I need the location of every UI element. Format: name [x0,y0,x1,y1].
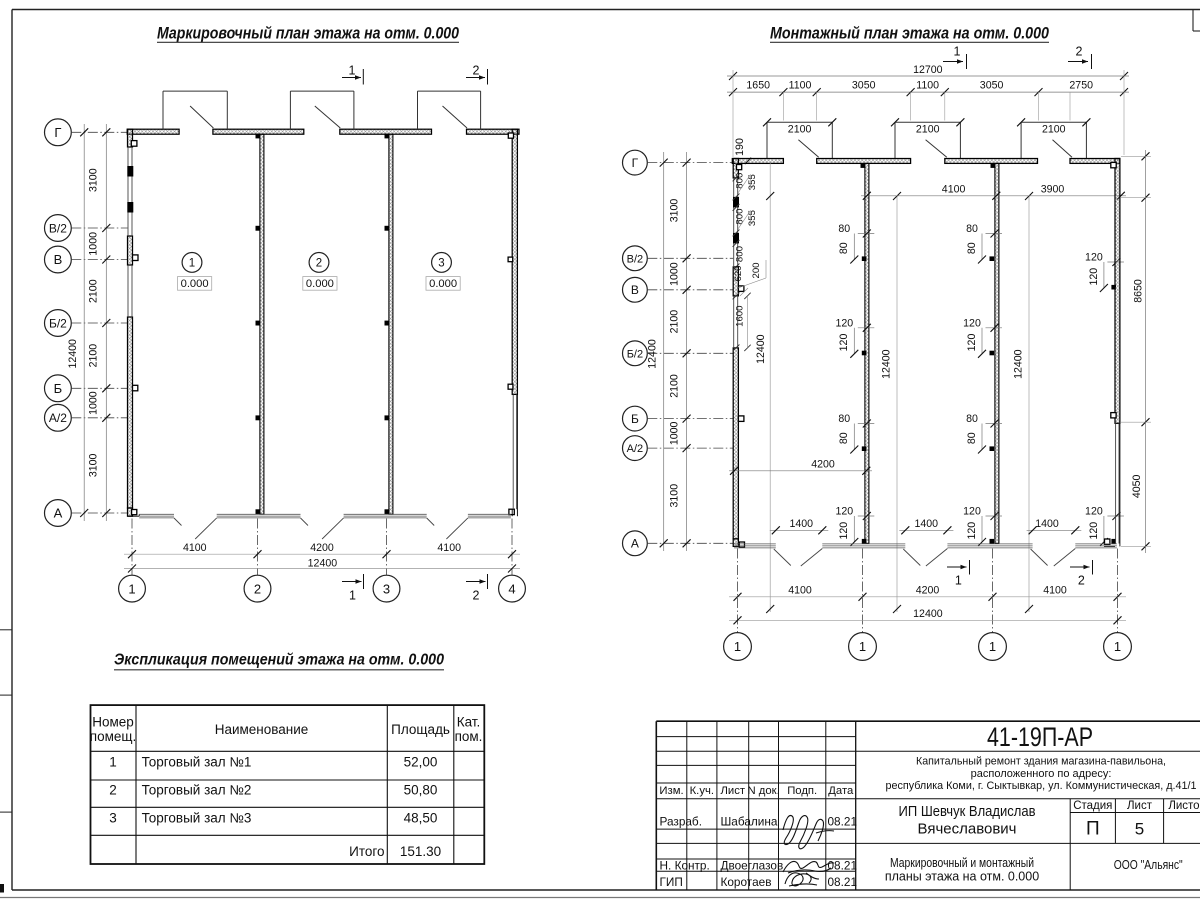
svg-text:3100: 3100 [669,484,681,508]
svg-text:Капитальный ремонт здания мага: Капитальный ремонт здания магазина-павил… [916,756,1166,768]
svg-text:Двоеглазов: Двоеглазов [721,858,784,872]
svg-text:Дата: Дата [828,785,854,797]
svg-text:200: 200 [751,262,762,278]
svg-text:1: 1 [734,639,741,654]
svg-text:2100: 2100 [916,124,940,136]
svg-text:ИП Шевчук Владислав: ИП Шевчук Владислав [899,803,1036,820]
svg-text:Коротаев: Коротаев [721,875,772,889]
svg-text:800: 800 [734,246,745,262]
svg-text:1: 1 [109,754,117,769]
svg-text:Экспликация помещений этажа на: Экспликация помещений этажа на отм. 0.00… [114,651,444,668]
svg-text:120: 120 [1085,252,1103,264]
svg-text:1400: 1400 [790,518,814,530]
svg-text:800: 800 [734,209,745,225]
svg-text:08.21: 08.21 [828,875,858,889]
svg-text:Вячеславович: Вячеславович [917,820,1016,837]
svg-text:Б/2: Б/2 [49,316,67,330]
svg-text:2100: 2100 [669,374,681,398]
svg-text:2: 2 [109,782,117,797]
svg-text:Торговый зал №1: Торговый зал №1 [142,754,252,769]
svg-text:12400: 12400 [755,334,767,364]
svg-text:4100: 4100 [183,542,207,554]
svg-text:4200: 4200 [916,584,940,596]
svg-text:1000: 1000 [669,262,681,286]
svg-text:1000: 1000 [88,391,100,415]
svg-text:А: А [631,537,639,551]
svg-text:0.000: 0.000 [306,278,334,290]
svg-text:1: 1 [955,574,962,588]
svg-text:2100: 2100 [669,310,681,334]
svg-text:5: 5 [1135,820,1144,839]
svg-text:41-19П-АР: 41-19П-АР [987,722,1093,752]
svg-text:4200: 4200 [811,458,835,470]
svg-text:2: 2 [473,589,480,603]
svg-text:3100: 3100 [669,199,681,223]
svg-text:Б: Б [631,412,639,426]
svg-text:12400: 12400 [880,349,892,379]
svg-text:Лист: Лист [1127,800,1153,812]
svg-text:2100: 2100 [88,344,100,368]
svg-text:Торговый зал №3: Торговый зал №3 [142,810,252,825]
svg-text:12700: 12700 [913,64,943,76]
svg-text:республика Коми, г. Сыктывкар,: республика Коми, г. Сыктывкар, ул. Комму… [886,780,1197,792]
svg-text:1: 1 [859,639,866,654]
svg-text:2: 2 [1078,574,1085,588]
svg-text:151.30: 151.30 [400,844,441,859]
svg-text:120: 120 [838,522,850,540]
svg-text:Монтажный план этажа на отм. 0: Монтажный план этажа на отм. 0.000 [770,25,1049,43]
svg-text:Торговый зал №2: Торговый зал №2 [142,782,252,797]
svg-text:расположенного по адресу:: расположенного по адресу: [971,768,1112,780]
svg-text:2: 2 [316,258,322,270]
svg-text:пом.: пом. [455,729,483,744]
svg-text:Номер: Номер [92,714,134,729]
svg-text:3050: 3050 [852,80,876,92]
svg-text:Изм.: Изм. [659,785,683,797]
svg-text:1400: 1400 [1035,518,1059,530]
svg-text:планы этажа на отм. 0.000: планы этажа на отм. 0.000 [885,869,1039,883]
svg-text:4: 4 [508,581,515,596]
svg-text:80: 80 [966,413,978,425]
svg-text:12400: 12400 [67,339,79,369]
svg-text:Кат.: Кат. [457,714,481,729]
svg-text:Лист: Лист [721,785,746,797]
svg-text:80: 80 [966,242,978,254]
svg-text:120: 120 [1088,522,1100,540]
svg-text:80: 80 [838,432,850,444]
svg-text:Н. Контр.: Н. Контр. [660,858,710,872]
svg-text:8650: 8650 [1133,279,1145,303]
svg-text:ГИП: ГИП [660,875,683,889]
svg-text:Маркировочный и монтажный: Маркировочный и монтажный [890,856,1034,870]
svg-text:1000: 1000 [88,232,100,256]
svg-text:12400: 12400 [913,608,943,620]
svg-text:4050: 4050 [1131,475,1143,499]
svg-text:1000: 1000 [669,422,681,446]
svg-text:4100: 4100 [942,183,966,195]
svg-text:К.уч.: К.уч. [690,785,714,797]
svg-text:1: 1 [349,589,356,603]
svg-text:48,50: 48,50 [404,810,438,825]
svg-text:А/2: А/2 [627,443,644,455]
svg-text:1100: 1100 [916,80,939,92]
svg-text:0.000: 0.000 [181,278,209,290]
svg-text:800: 800 [734,173,745,189]
svg-text:2100: 2100 [1042,124,1066,136]
svg-text:1: 1 [989,639,996,654]
svg-text:12400: 12400 [1012,349,1024,379]
svg-text:Подп.: Подп. [787,785,817,797]
svg-text:1: 1 [954,45,961,59]
svg-text:3100: 3100 [88,454,100,478]
svg-text:Наименование: Наименование [215,722,309,737]
svg-text:Разраб.: Разраб. [660,814,702,828]
svg-text:4100: 4100 [788,584,812,596]
svg-text:120: 120 [966,522,978,540]
svg-text:1: 1 [1114,639,1121,654]
svg-text:80: 80 [838,242,850,254]
svg-text:А/2: А/2 [49,411,67,425]
svg-text:1600: 1600 [734,306,745,327]
svg-text:2100: 2100 [788,124,812,136]
svg-text:120: 120 [966,334,978,352]
svg-text:80: 80 [966,223,978,235]
svg-text:Б/2: Б/2 [627,348,643,360]
svg-text:08.21: 08.21 [828,858,858,872]
svg-text:3: 3 [383,581,390,596]
svg-text:Б: Б [54,381,63,396]
svg-text:В/2: В/2 [49,221,67,235]
svg-text:4100: 4100 [437,542,461,554]
svg-text:А: А [54,506,63,521]
svg-text:Стадия: Стадия [1073,800,1112,812]
svg-text:Листов: Листов [1168,800,1200,812]
svg-text:2100: 2100 [88,279,100,303]
svg-text:120: 120 [1088,268,1100,286]
svg-text:Шабалина: Шабалина [721,814,778,828]
svg-text:120: 120 [835,317,853,329]
svg-text:3100: 3100 [88,168,100,192]
svg-text:Г: Г [54,125,61,140]
svg-text:1: 1 [349,64,356,78]
svg-text:2750: 2750 [1069,80,1093,92]
svg-text:1650: 1650 [746,80,770,92]
svg-text:В: В [631,283,639,297]
svg-text:ООО "Альянс": ООО "Альянс" [1114,858,1183,872]
svg-text:80: 80 [838,223,850,235]
svg-text:В/2: В/2 [627,253,644,265]
svg-text:1100: 1100 [789,80,812,92]
svg-text:80: 80 [966,432,978,444]
svg-text:П: П [1086,819,1100,840]
svg-text:1: 1 [189,258,195,270]
svg-text:1: 1 [128,581,135,596]
svg-text:Маркировочный план этажа на от: Маркировочный план этажа на отм. 0.000 [157,25,459,43]
svg-text:В: В [54,252,63,267]
svg-text:Г: Г [632,156,639,170]
svg-text:3: 3 [438,258,444,270]
svg-text:120: 120 [1085,506,1103,518]
svg-text:12400: 12400 [646,339,658,369]
svg-text:0.000: 0.000 [429,278,457,290]
svg-text:12400: 12400 [308,558,338,570]
svg-text:80: 80 [838,413,850,425]
svg-text:190: 190 [734,138,746,156]
svg-text:3050: 3050 [980,80,1004,92]
svg-text:52,00: 52,00 [404,754,438,769]
svg-text:2: 2 [254,581,261,596]
svg-text:N док.: N док. [747,785,779,797]
svg-text:08.21: 08.21 [828,814,858,828]
svg-text:Площадь: Площадь [391,722,450,737]
svg-text:2: 2 [473,64,480,78]
svg-text:120: 120 [963,317,981,329]
svg-text:120: 120 [963,506,981,518]
svg-text:помещ.: помещ. [90,729,136,744]
svg-text:4100: 4100 [1043,584,1067,596]
svg-text:620: 620 [733,265,744,281]
svg-text:1400: 1400 [915,518,939,530]
svg-text:120: 120 [835,506,853,518]
svg-text:120: 120 [838,334,850,352]
svg-text:3: 3 [109,810,117,825]
svg-text:50,80: 50,80 [404,782,438,797]
svg-text:3900: 3900 [1041,183,1065,195]
svg-text:2: 2 [1076,45,1083,59]
svg-text:Итого: Итого [349,844,384,859]
svg-text:4200: 4200 [310,542,334,554]
